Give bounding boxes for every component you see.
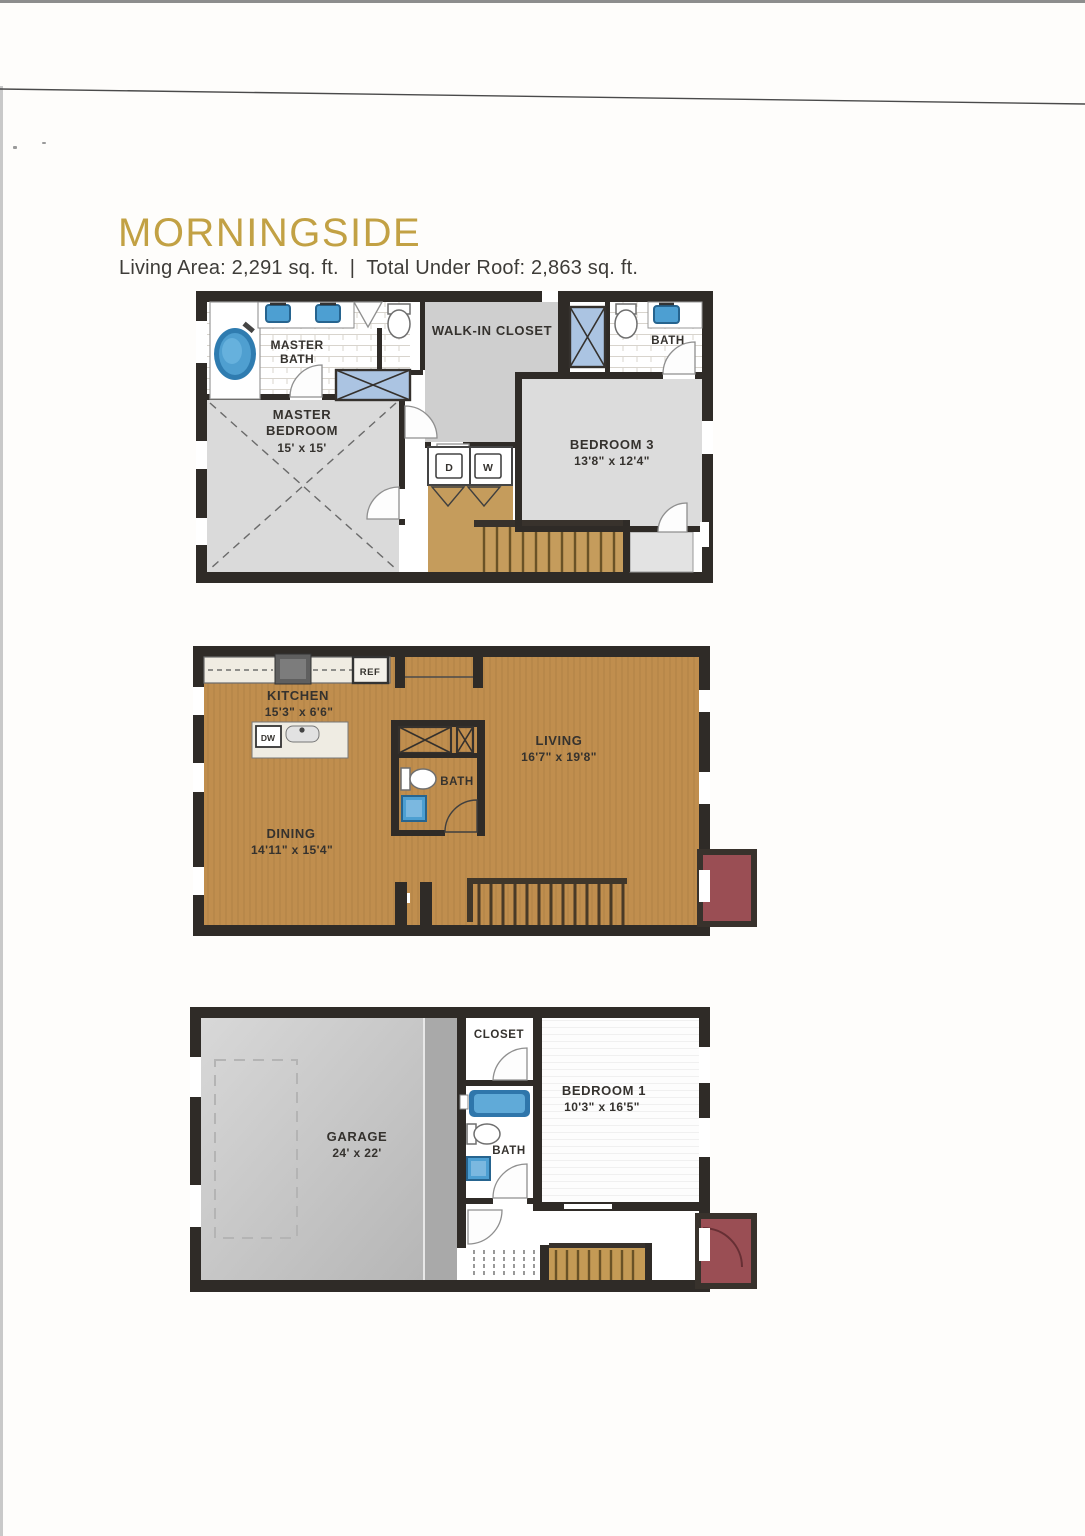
master-bedroom-dims: 15' x 15' (277, 441, 326, 455)
walk-in-closet-label: WALK-IN CLOSET (432, 323, 552, 338)
living-dims: 16'7" x 19'8" (521, 750, 597, 764)
bedroom1-label: BEDROOM 1 (562, 1083, 646, 1098)
toilet-fixture (401, 768, 436, 790)
bathtub-fixture (210, 302, 260, 399)
bedroom1-dims: 10'3" x 16'5" (564, 1100, 640, 1114)
scan-edge-top (0, 0, 1085, 3)
garage-label: GARAGE (327, 1129, 388, 1144)
kitchen-dims: 15'3" x 6'6" (265, 705, 334, 719)
kitchen-label: KITCHEN (267, 688, 329, 703)
bath-label: BATH (492, 1145, 526, 1157)
bedroom3-floor (522, 379, 702, 526)
plan-stats: Living Area: 2,291 sq. ft.|Total Under R… (119, 257, 638, 280)
dining-label: DINING (266, 826, 315, 841)
dw-label: DW (261, 733, 276, 743)
hall-shower-fixture (570, 307, 605, 367)
master-bedroom-label: BEDROOM (266, 423, 338, 438)
dining-dims: 14'11" x 15'4" (251, 843, 333, 857)
upper-floor-plan: D W MASTER BATH WALK-IN CLOSET BATH MAST… (196, 291, 713, 583)
toilet-fixture (467, 1124, 500, 1144)
dryer-label: D (445, 462, 453, 474)
refrigerator-fixture: REF (353, 657, 388, 683)
total-under-roof-text: Total Under Roof: 2,863 sq. ft. (366, 257, 638, 279)
bathtub-fixture (460, 1090, 530, 1117)
sink-fixture (648, 302, 702, 328)
plan-title: MORNINGSIDE (118, 211, 421, 256)
washer-label: W (483, 462, 493, 474)
interior-wall (533, 1018, 542, 1202)
bath-label: BATH (440, 776, 474, 788)
scanned-floorplan-page: MORNINGSIDE Living Area: 2,291 sq. ft.|T… (0, 0, 1085, 1536)
bedroom3-label: BEDROOM 3 (570, 437, 654, 452)
bedroom1-bottom-wall (533, 1202, 699, 1211)
living-label: LIVING (536, 733, 583, 748)
toilet-fixture (615, 304, 637, 338)
master-bedroom-label: MASTER (273, 407, 332, 422)
master-bath-label: BATH (280, 352, 314, 366)
closet-label: CLOSET (474, 1029, 524, 1041)
scan-crease-line (0, 80, 1085, 120)
bath-label: BATH (651, 335, 685, 347)
kitchen-island: DW (252, 722, 348, 758)
toilet-fixture (388, 304, 410, 338)
ref-label: REF (360, 667, 381, 678)
scan-speck (13, 146, 17, 149)
main-floor-plan: REF DW (193, 646, 765, 936)
double-vanity-fixture (258, 302, 354, 328)
landing-floor (630, 532, 693, 572)
scan-speck (42, 142, 46, 144)
stairs (466, 1243, 652, 1280)
master-shower-fixture (336, 370, 410, 400)
master-bath-label: MASTER (270, 338, 323, 352)
interior-wall (457, 1018, 466, 1248)
stats-separator: | (350, 257, 355, 279)
scan-edge-left (0, 86, 3, 1536)
living-area-text: Living Area: 2,291 sq. ft. (119, 257, 339, 279)
ground-floor-plan: CLOSET BATH (190, 1007, 762, 1292)
garage-area (201, 1018, 457, 1280)
garage-dims: 24' x 22' (332, 1146, 381, 1160)
bedroom3-dims: 13'8" x 12'4" (574, 454, 650, 468)
